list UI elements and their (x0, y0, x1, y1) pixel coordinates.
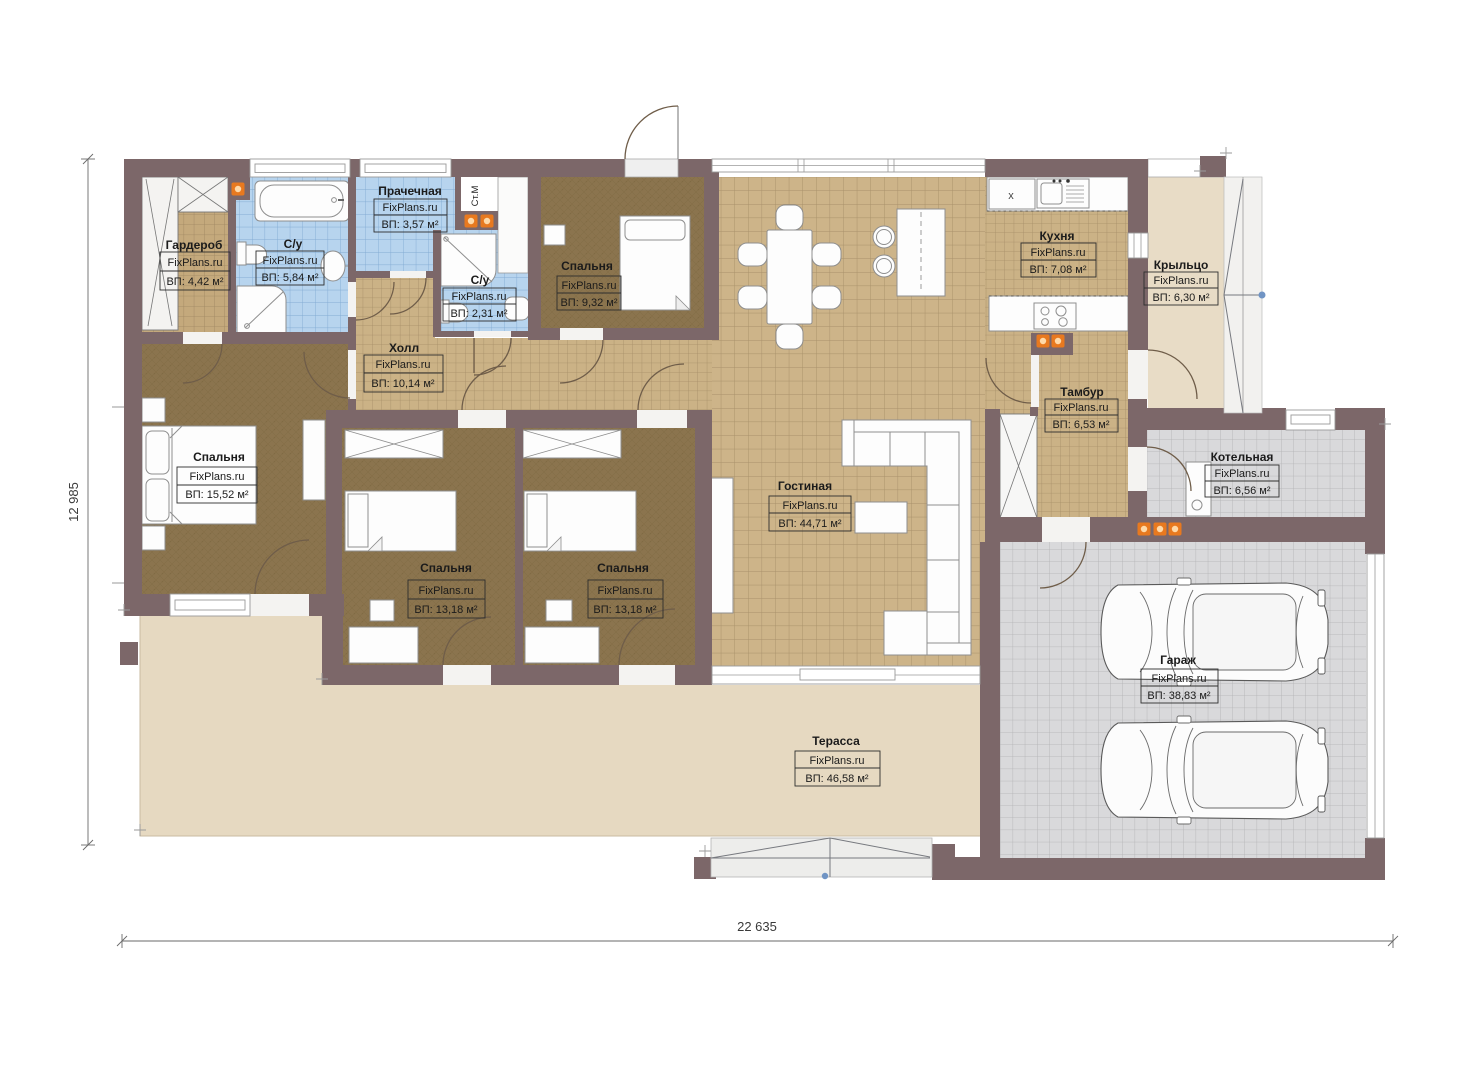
svg-text:FixPlans.ru: FixPlans.ru (1214, 468, 1269, 480)
svg-text:Крыльцо: Крыльцо (1154, 258, 1209, 272)
svg-text:ВП: 9,32 м²: ВП: 9,32 м² (560, 297, 617, 309)
svg-text:ВП: 46,58 м²: ВП: 46,58 м² (805, 773, 869, 785)
svg-text:FixPlans.ru: FixPlans.ru (1053, 402, 1108, 414)
svg-text:Спальня: Спальня (597, 561, 649, 575)
svg-text:Холл: Холл (389, 341, 419, 355)
svg-text:FixPlans.ru: FixPlans.ru (375, 359, 430, 371)
svg-text:12 985: 12 985 (66, 482, 81, 522)
svg-text:Прачечная: Прачечная (378, 184, 442, 198)
svg-text:Спальня: Спальня (193, 450, 245, 464)
svg-text:Спальня: Спальня (561, 259, 613, 273)
svg-text:FixPlans.ru: FixPlans.ru (809, 755, 864, 767)
svg-text:Кухня: Кухня (1039, 229, 1074, 243)
svg-text:Гостиная: Гостиная (778, 479, 832, 493)
svg-text:ВП: 5,84 м²: ВП: 5,84 м² (261, 272, 318, 284)
svg-text:ВП: 4,42 м²: ВП: 4,42 м² (166, 276, 223, 288)
svg-text:FixPlans.ru: FixPlans.ru (782, 500, 837, 512)
svg-text:FixPlans.ru: FixPlans.ru (382, 202, 437, 214)
svg-text:Терасса: Терасса (812, 734, 860, 748)
svg-text:FixPlans.ru: FixPlans.ru (1153, 275, 1208, 287)
svg-text:ВП: 38,83 м²: ВП: 38,83 м² (1147, 690, 1211, 702)
svg-text:22 635: 22 635 (737, 919, 777, 934)
svg-text:Тамбур: Тамбур (1060, 385, 1104, 399)
svg-text:FixPlans.ru: FixPlans.ru (262, 255, 317, 267)
svg-text:FixPlans.ru: FixPlans.ru (418, 585, 473, 597)
svg-text:ВП: 7,08 м²: ВП: 7,08 м² (1029, 264, 1086, 276)
svg-text:ВП: 6,53 м²: ВП: 6,53 м² (1052, 419, 1109, 431)
svg-text:С/у: С/у (284, 237, 303, 251)
svg-text:x: x (1008, 190, 1014, 202)
svg-text:ВП: 44,71 м²: ВП: 44,71 м² (778, 518, 842, 530)
svg-text:Гараж: Гараж (1160, 653, 1196, 667)
svg-text:FixPlans.ru: FixPlans.ru (189, 471, 244, 483)
svg-text:С/у: С/у (471, 273, 490, 287)
svg-text:ВП: 6,30 м²: ВП: 6,30 м² (1152, 292, 1209, 304)
svg-text:FixPlans.ru: FixPlans.ru (167, 257, 222, 269)
svg-text:FixPlans.ru: FixPlans.ru (1030, 247, 1085, 259)
svg-text:ВП: 13,18 м²: ВП: 13,18 м² (414, 604, 478, 616)
svg-text:Гардероб: Гардероб (166, 238, 223, 252)
svg-text:Котельная: Котельная (1211, 450, 1274, 464)
svg-text:ВП: 15,52 м²: ВП: 15,52 м² (185, 489, 249, 501)
svg-text:Спальня: Спальня (420, 561, 472, 575)
svg-text:FixPlans.ru: FixPlans.ru (451, 291, 506, 303)
svg-text:ВП: 3,57 м²: ВП: 3,57 м² (381, 219, 438, 231)
svg-text:ВП: 6,56 м²: ВП: 6,56 м² (1213, 485, 1270, 497)
svg-text:ВП: 13,18 м²: ВП: 13,18 м² (593, 604, 657, 616)
svg-text:FixPlans.ru: FixPlans.ru (561, 280, 616, 292)
svg-text:FixPlans.ru: FixPlans.ru (597, 585, 652, 597)
svg-text:Ст.М: Ст.М (470, 186, 481, 207)
svg-text:FixPlans.ru: FixPlans.ru (1151, 673, 1206, 685)
svg-text:ВП: 2,31 м²: ВП: 2,31 м² (450, 308, 507, 320)
svg-text:ВП: 10,14 м²: ВП: 10,14 м² (371, 378, 435, 390)
